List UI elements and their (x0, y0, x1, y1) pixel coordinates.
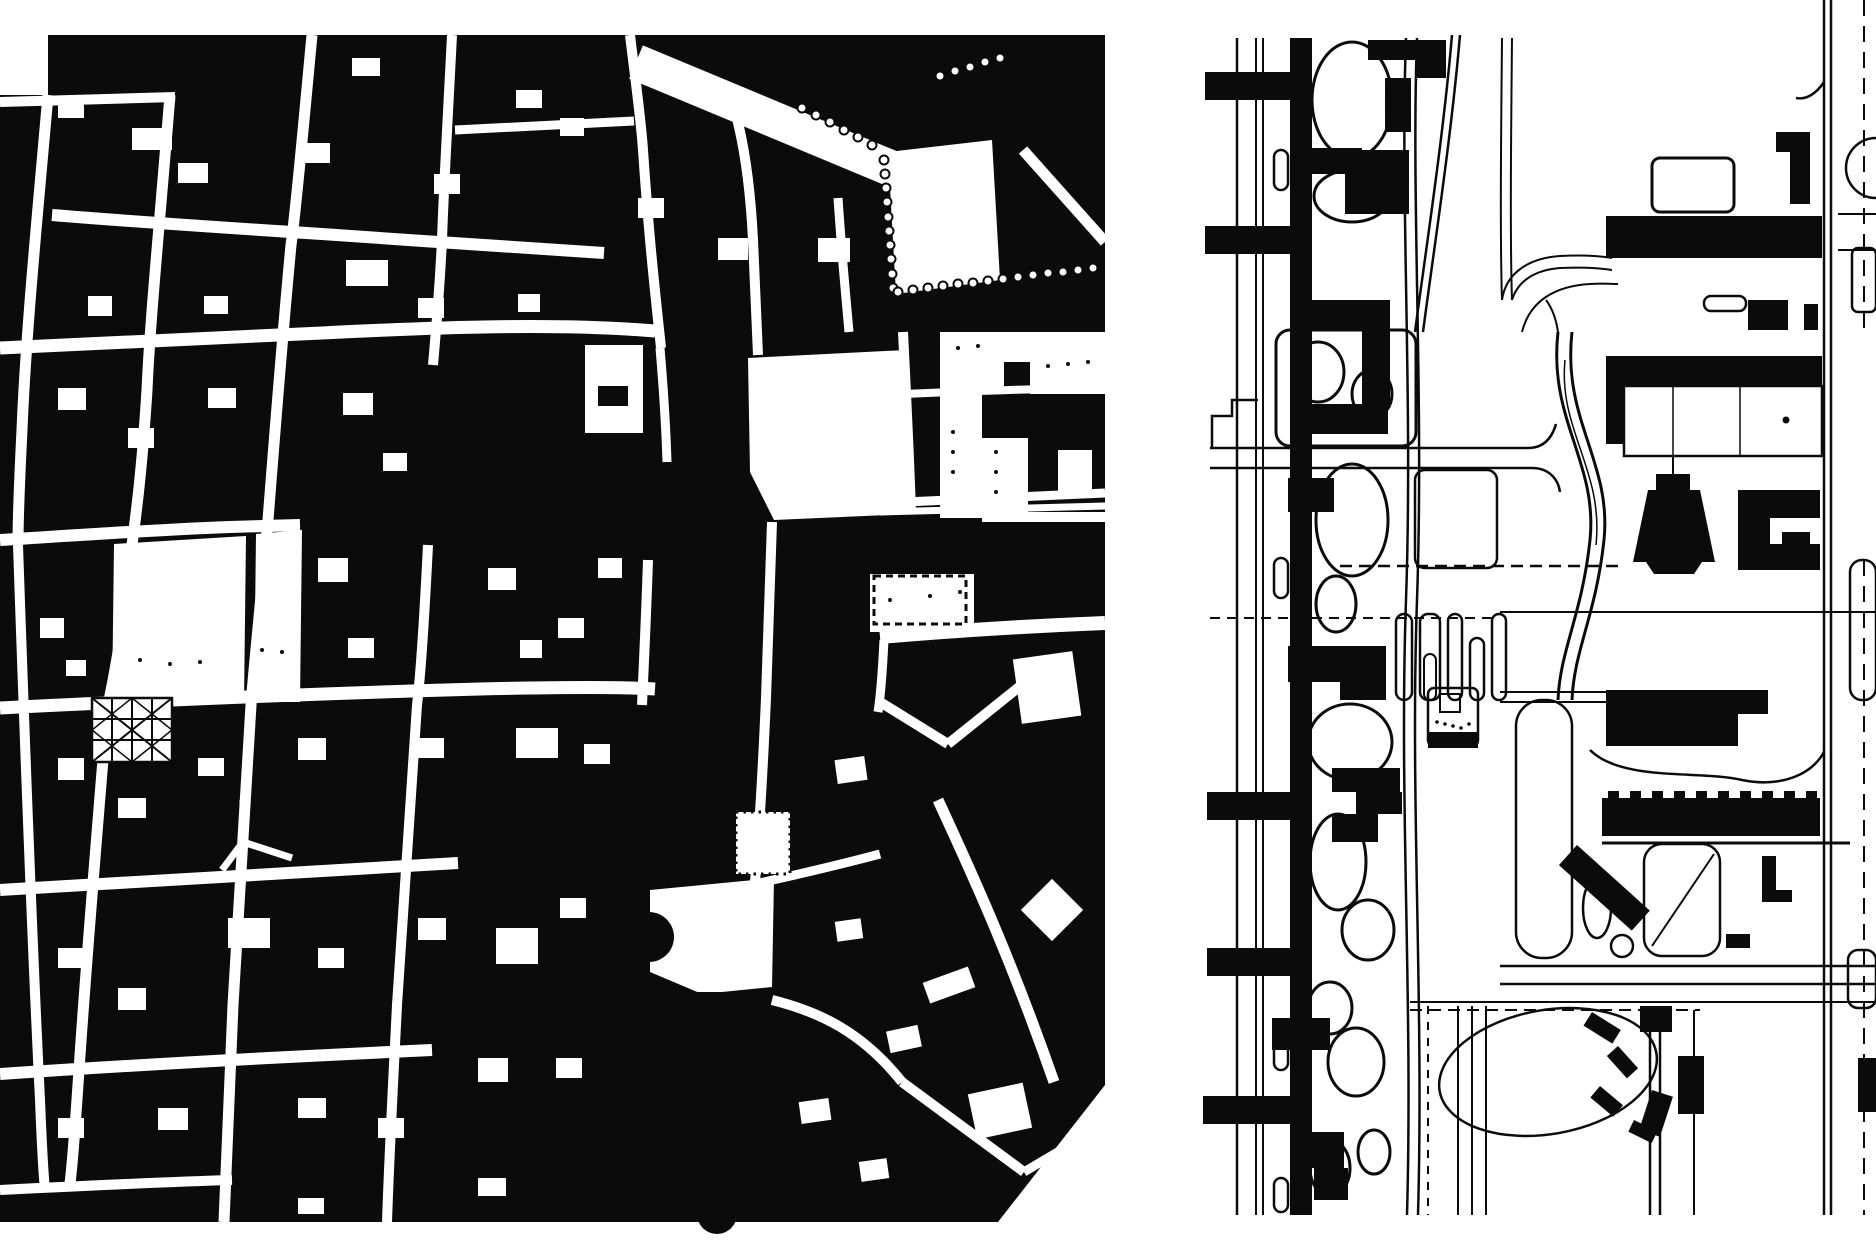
courtyard (558, 618, 584, 638)
court (1058, 450, 1092, 492)
map-shape (1089, 264, 1098, 273)
map-shape (1443, 722, 1447, 726)
building (1768, 544, 1820, 570)
courtyard (378, 1118, 404, 1138)
traditional-city-figure-ground-map[interactable] (0, 35, 1105, 1234)
map-shape (280, 650, 284, 654)
piazza (254, 530, 302, 702)
map-shape (1696, 791, 1707, 799)
map-shape (939, 282, 948, 291)
courtyard (132, 128, 172, 150)
map-shape (885, 227, 894, 236)
auditorium (1633, 490, 1715, 562)
courtyard (718, 238, 748, 260)
map-shape (768, 1118, 778, 1134)
park-edge (1590, 750, 1824, 782)
courtyard (348, 638, 374, 658)
map-shape (956, 346, 960, 350)
slab-wing (1205, 226, 1290, 254)
map-shape (1044, 269, 1053, 278)
map-shape (969, 279, 978, 288)
map-shape (1762, 791, 1773, 799)
courtyard (298, 1198, 324, 1214)
map-shape (958, 590, 962, 594)
park-grove (1312, 42, 1392, 158)
ramp (1796, 82, 1824, 98)
courtyard (178, 163, 208, 183)
map-shape (168, 662, 172, 666)
park-strip (1516, 700, 1572, 958)
map-shape (826, 118, 835, 127)
map-shape (881, 170, 890, 179)
courtyard (560, 898, 586, 918)
map-shape (1328, 1028, 1384, 1096)
pool (1611, 935, 1633, 957)
median (1274, 150, 1288, 190)
modernist-plan-figure-ground-map[interactable] (1203, 0, 1876, 1215)
highway (1511, 38, 1512, 300)
building (1584, 1012, 1621, 1044)
map-shape (1451, 724, 1455, 728)
courtyard (298, 738, 326, 760)
map-shape (976, 344, 980, 348)
median (1274, 558, 1288, 598)
map-shape (1467, 722, 1471, 726)
median (1274, 1178, 1288, 1212)
building (1738, 518, 1770, 570)
map-shape (198, 660, 202, 664)
slab-wing (1203, 1096, 1290, 1124)
courtyard (318, 948, 344, 968)
map-shape (1342, 900, 1394, 960)
courtyard (118, 988, 146, 1010)
courtyard (584, 744, 610, 764)
map-shape (768, 1176, 778, 1192)
cloister-wing (598, 386, 628, 406)
park-outline (1846, 138, 1876, 198)
building (1726, 934, 1750, 948)
slab-building (1606, 216, 1822, 258)
map-shape (882, 184, 891, 193)
court (1030, 362, 1105, 394)
map-shape (854, 133, 863, 142)
slab-building (1602, 798, 1820, 836)
map-shape (966, 63, 975, 72)
map-shape (1358, 1130, 1390, 1174)
map-shape (656, 1118, 666, 1134)
plan-canvas (0, 0, 1876, 1251)
courtyard (516, 728, 558, 758)
courtyard (204, 296, 228, 314)
courtyard (298, 143, 330, 163)
park-outline (1848, 950, 1876, 1008)
street (940, 362, 982, 518)
courtyard (418, 738, 444, 758)
plot-line (1212, 400, 1258, 448)
map-shape (951, 470, 955, 474)
slab-wing (1205, 72, 1290, 100)
building (1738, 490, 1820, 518)
map-shape (1646, 562, 1702, 574)
map-shape (936, 72, 945, 81)
ramp (1522, 284, 1618, 332)
building (1790, 152, 1810, 204)
ramp (1502, 256, 1612, 300)
building (1606, 690, 1738, 746)
arcaded-court (736, 812, 790, 874)
slab-wing (1207, 948, 1290, 976)
map-shape (884, 213, 893, 222)
map-shape (888, 598, 892, 602)
courtyard (1013, 651, 1081, 724)
building-outline (1852, 248, 1876, 312)
courtyard (818, 238, 850, 262)
dashed-lot (874, 576, 966, 624)
building (1804, 304, 1818, 330)
courtyard (859, 1158, 890, 1182)
map-shape (909, 286, 918, 295)
map-shape (994, 450, 998, 454)
road (1423, 35, 1460, 332)
map-shape (994, 470, 998, 474)
map-shape (981, 58, 990, 67)
court (982, 438, 1028, 516)
courtyard (496, 928, 538, 964)
courtyard (298, 1098, 326, 1118)
civic-slab (1606, 356, 1822, 386)
map-shape (1740, 791, 1751, 799)
map-shape (1630, 791, 1641, 799)
church (666, 992, 768, 1214)
map-shape (984, 277, 993, 286)
courtyard (799, 1098, 832, 1124)
map-shape (1718, 791, 1729, 799)
map-shape (1059, 268, 1068, 277)
map-shape (1014, 273, 1023, 282)
map-shape (951, 450, 955, 454)
building (1272, 1018, 1330, 1050)
map-shape (954, 280, 963, 289)
auditorium-stage (1656, 474, 1690, 490)
map-shape (798, 104, 807, 113)
map-shape (951, 430, 955, 434)
courtyard (228, 918, 270, 948)
courtyard (343, 393, 373, 415)
map-shape (656, 1056, 666, 1072)
map-shape (928, 594, 932, 598)
courtyard (834, 756, 867, 784)
courtyard (560, 118, 584, 136)
courtyard (418, 918, 446, 940)
building (1640, 1006, 1672, 1032)
map-shape (1784, 791, 1795, 799)
courtyard (208, 388, 236, 408)
building (1762, 856, 1776, 902)
strip-lot (1424, 654, 1436, 700)
map-shape (886, 241, 895, 250)
map-shape (768, 1056, 778, 1072)
courtyard (88, 296, 112, 316)
courtyard (520, 640, 542, 658)
stipple (916, 350, 920, 354)
map-shape (1026, 366, 1030, 370)
courtyard (434, 174, 460, 194)
map-shape (1783, 417, 1790, 424)
map-shape (1006, 368, 1010, 372)
map-shape (868, 141, 877, 150)
map-shape (996, 54, 1005, 63)
courtyard (346, 260, 388, 286)
building (1858, 1058, 1876, 1112)
map-shape (1074, 266, 1083, 275)
courtyard (352, 58, 380, 76)
courtyard (58, 1118, 84, 1138)
map-shape (888, 270, 897, 279)
road (1404, 38, 1409, 1215)
park-outline (1415, 470, 1497, 568)
courtyard (58, 948, 84, 968)
building (1292, 1132, 1344, 1168)
courtyard (556, 1058, 582, 1078)
courtyard (478, 1178, 506, 1196)
street (0, 97, 175, 102)
map-shape (1806, 791, 1817, 799)
map-shape (812, 111, 821, 120)
building (598, 898, 624, 928)
baptistery (624, 912, 674, 962)
building (1340, 650, 1386, 700)
courtyard (488, 568, 516, 590)
building (1356, 792, 1402, 814)
map-shape (887, 255, 896, 264)
map-shape (883, 198, 892, 207)
courtyard (318, 558, 348, 582)
chapel-base (1428, 732, 1478, 748)
civic-wing (1606, 386, 1624, 444)
map-shape (999, 275, 1008, 284)
map-shape (1316, 576, 1356, 632)
map-shape (924, 284, 933, 293)
courtyard (835, 918, 864, 941)
courtyard (58, 758, 84, 780)
map-shape (894, 288, 903, 297)
map-shape (1738, 690, 1768, 714)
courtyard (198, 758, 224, 776)
courtyard (128, 428, 154, 448)
building (1776, 132, 1810, 152)
map-shape (656, 1176, 666, 1192)
map-shape (260, 648, 264, 652)
map-shape (1782, 532, 1810, 546)
courtyard (478, 1058, 508, 1082)
map-shape (138, 658, 142, 662)
courtyard (118, 798, 146, 818)
courtyard (58, 388, 86, 410)
map-shape (1528, 424, 1556, 448)
courtyard (638, 198, 664, 218)
slab-wing (1312, 300, 1390, 330)
map-shape (1029, 271, 1038, 280)
arcade-dot (880, 156, 889, 165)
map-shape (1652, 791, 1663, 799)
building (1332, 814, 1378, 842)
building (1288, 478, 1334, 512)
road (1415, 35, 1452, 332)
map-shape (1546, 300, 1558, 332)
building (1748, 300, 1788, 330)
map-shape (1086, 360, 1090, 364)
street (940, 332, 1105, 362)
map-shape (994, 490, 998, 494)
pavilion-outline (1704, 296, 1746, 311)
strip-lot (1492, 614, 1506, 700)
courtyard (516, 90, 542, 108)
building-outline (1652, 158, 1734, 212)
map-shape (1532, 468, 1560, 492)
slab-wing (1207, 792, 1290, 820)
piazza (748, 350, 910, 520)
courtyard (518, 294, 540, 312)
court (982, 362, 1004, 394)
courtyard (383, 453, 407, 471)
map-shape (936, 348, 940, 352)
map-shape (1674, 791, 1685, 799)
map-shape (840, 126, 849, 135)
map-shape (1608, 791, 1619, 799)
map-shape (1459, 726, 1463, 730)
figure-ground-comparison (0, 0, 1876, 1251)
courtyard (66, 660, 86, 676)
courtyard (158, 1108, 188, 1130)
civic-court (1624, 386, 1822, 456)
piazza (112, 536, 246, 704)
building (1607, 1046, 1638, 1078)
courtyard (418, 298, 444, 318)
courtyard (40, 618, 64, 638)
building (1639, 1090, 1673, 1137)
river-road (1571, 332, 1605, 700)
piazza (888, 140, 1000, 294)
courtyard (58, 96, 84, 118)
courtyard (598, 558, 622, 578)
map-shape (1776, 890, 1792, 902)
map-shape (1046, 364, 1050, 368)
map-shape (1435, 720, 1439, 724)
map-shape (951, 67, 960, 76)
map-shape (1316, 464, 1388, 576)
street (982, 512, 1105, 522)
map-shape (1066, 362, 1070, 366)
apse (697, 1194, 737, 1234)
building (1678, 1056, 1704, 1114)
highway (1501, 38, 1502, 300)
map-shape (1652, 854, 1714, 946)
